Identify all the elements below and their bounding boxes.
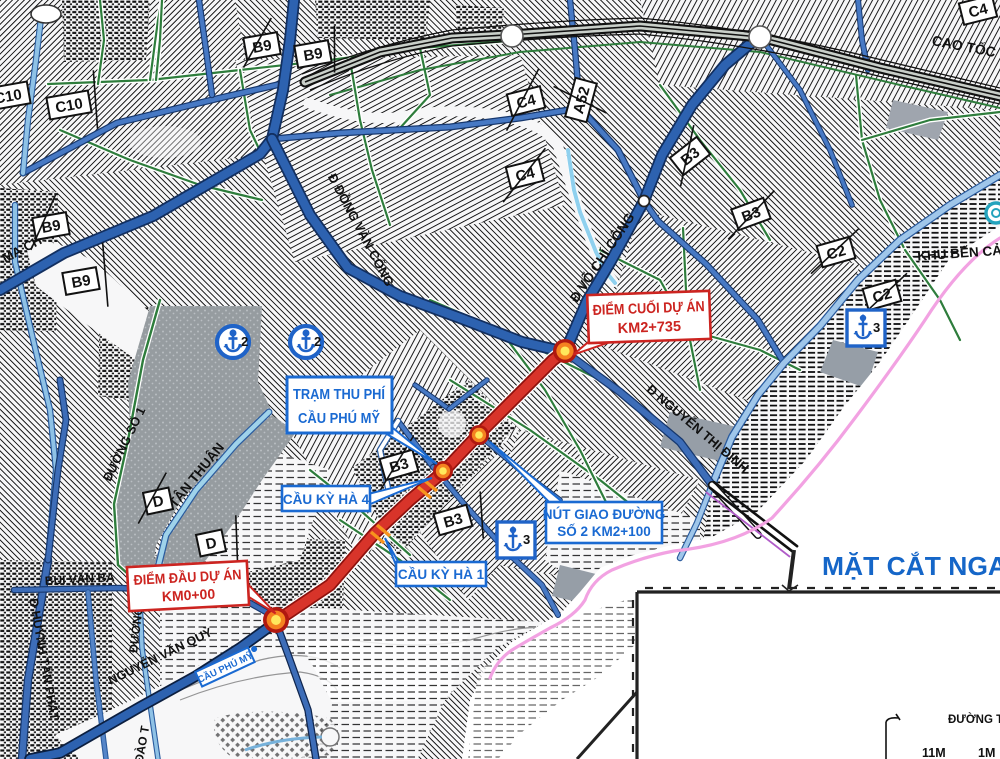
svg-text:TRẠM THU PHÍ: TRẠM THU PHÍ xyxy=(293,386,386,403)
svg-text:KM2+735: KM2+735 xyxy=(617,319,681,337)
svg-text:MẶT CẮT NGA: MẶT CẮT NGA xyxy=(822,551,1000,581)
svg-text:2: 2 xyxy=(241,334,248,349)
svg-text:CẦU KỲ HÀ 1: CẦU KỲ HÀ 1 xyxy=(398,567,485,582)
svg-text:NÚT GIAO ĐƯỜNG: NÚT GIAO ĐƯỜNG xyxy=(543,507,665,522)
svg-text:ĐƯỜNG T: ĐƯỜNG T xyxy=(948,713,1000,726)
svg-text:11M: 11M xyxy=(922,746,946,759)
svg-text:KM0+00: KM0+00 xyxy=(161,586,215,605)
svg-text:3: 3 xyxy=(873,320,880,335)
svg-text:1M: 1M xyxy=(978,746,995,759)
svg-text:2: 2 xyxy=(314,334,321,349)
svg-text:CẦU KỲ HÀ 4: CẦU KỲ HÀ 4 xyxy=(283,492,370,507)
svg-text:SỐ 2 KM2+100: SỐ 2 KM2+100 xyxy=(557,524,650,539)
svg-text:B9: B9 xyxy=(302,45,324,65)
svg-text:B9: B9 xyxy=(70,272,92,292)
svg-text:CẦU PHÚ MỸ: CẦU PHÚ MỸ xyxy=(298,409,380,427)
svg-text:3: 3 xyxy=(523,532,530,547)
